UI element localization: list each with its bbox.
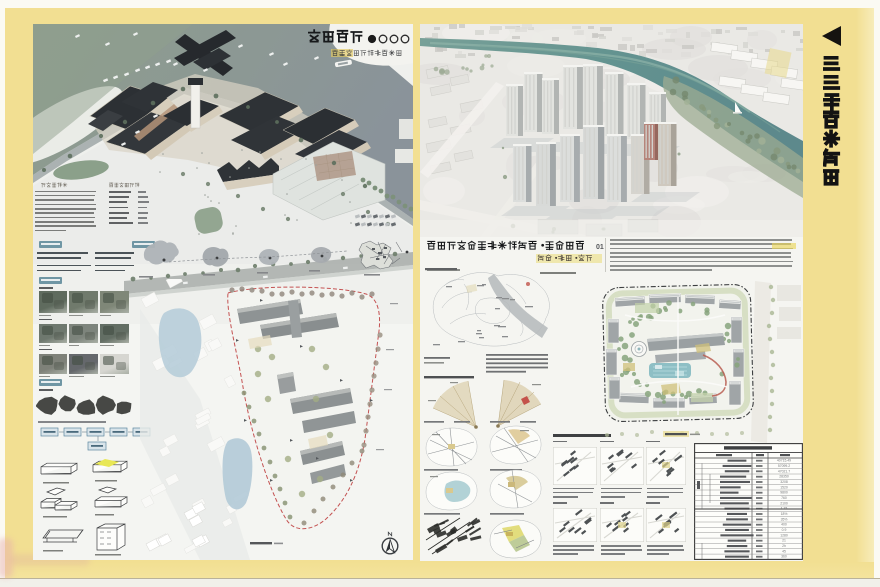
svg-text:28350: 28350 xyxy=(779,475,789,479)
svg-text:1520: 1520 xyxy=(780,485,788,489)
svg-text:360: 360 xyxy=(781,555,787,559)
svg-text:47021.7: 47021.7 xyxy=(778,469,790,473)
svg-text:400: 400 xyxy=(781,523,787,527)
svg-text:9800: 9800 xyxy=(780,491,788,495)
svg-text:35%: 35% xyxy=(781,517,788,521)
svg-text:45: 45 xyxy=(782,549,786,553)
svg-text:1280: 1280 xyxy=(780,533,788,537)
svg-text:57099.2: 57099.2 xyxy=(778,464,790,468)
svg-text:18%: 18% xyxy=(781,512,788,516)
svg-text:40715.49: 40715.49 xyxy=(777,459,791,463)
svg-text:0.9: 0.9 xyxy=(782,528,787,532)
svg-text:2h: 2h xyxy=(782,544,786,548)
svg-text:760: 760 xyxy=(781,496,787,500)
svg-text:21: 21 xyxy=(782,539,786,543)
svg-text:2100: 2100 xyxy=(780,501,788,505)
svg-text:3208: 3208 xyxy=(780,480,788,484)
